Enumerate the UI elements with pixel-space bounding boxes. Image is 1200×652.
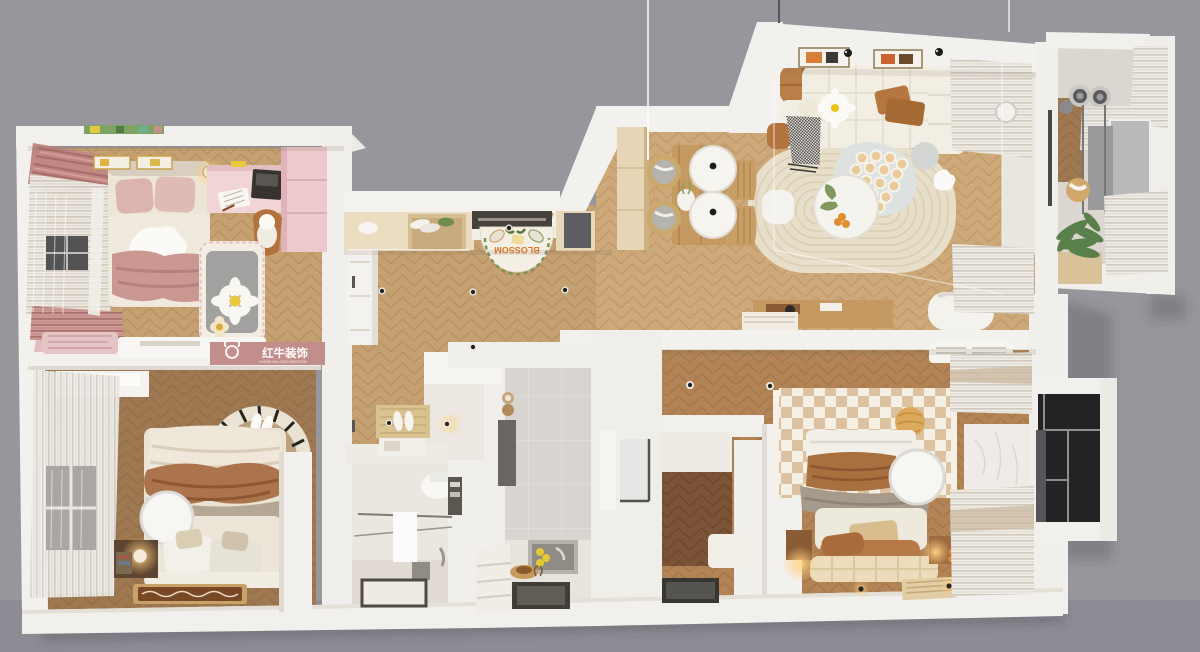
svg-text:HONG NIU DECORATION: HONG NIU DECORATION xyxy=(259,359,307,364)
svg-text:红牛装饰: 红牛装饰 xyxy=(262,346,308,360)
